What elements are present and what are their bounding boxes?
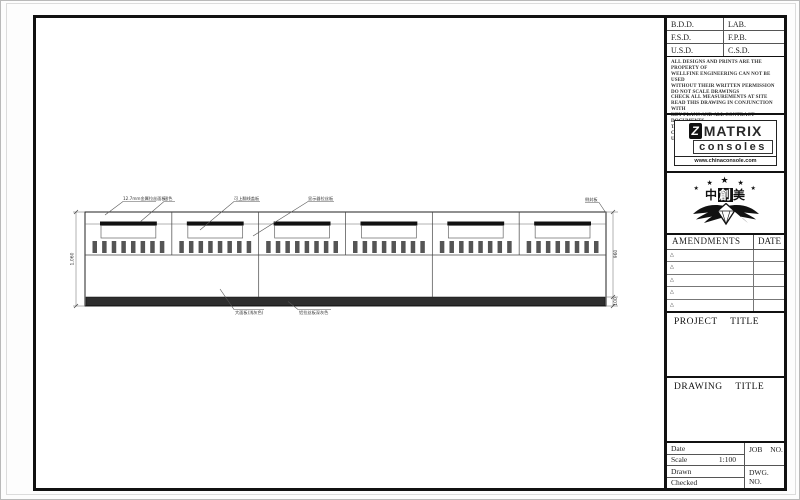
disclaimer-line: WITHOUT THEIR WRITTEN PERMISSION xyxy=(671,84,782,90)
emblem-char: 美 xyxy=(733,188,746,202)
emblem-char: 中 xyxy=(705,188,718,202)
info-left-column: Date Scale 1:100 Drawn Checked xyxy=(667,443,745,488)
dwg-no-cell: DWG. NO. xyxy=(745,466,784,488)
approval-cell: B.D.D. xyxy=(667,18,724,31)
vent-slot xyxy=(208,241,213,253)
vent-slot xyxy=(247,241,252,253)
vent-slot xyxy=(160,241,165,253)
vent-slot xyxy=(150,241,155,253)
vent-slot xyxy=(459,241,464,253)
revision-mark: △ xyxy=(667,262,754,273)
star-icon: ★ xyxy=(721,176,729,185)
vent-slot xyxy=(305,241,310,253)
date-column-header: DATE xyxy=(754,235,784,249)
monitor-strip-bar xyxy=(274,222,331,226)
monitor-recess-panel xyxy=(535,226,590,239)
vent-slot xyxy=(237,241,242,253)
revision-mark: △ xyxy=(667,250,754,261)
monitor-strip-bar xyxy=(447,222,504,226)
scale-label: Scale xyxy=(671,455,687,464)
company-emblem-section: ★ ★ ★ ★ ★ 中創美 xyxy=(667,171,784,233)
dimension-left-total: 1,060 xyxy=(70,210,86,308)
date-row: Date xyxy=(667,443,744,455)
callout-top4: 侧封板 xyxy=(585,196,598,203)
vent-slot xyxy=(266,241,271,253)
vent-slot xyxy=(141,241,146,253)
vent-slot xyxy=(382,241,387,253)
vent-slot xyxy=(575,241,580,253)
emblem-characters: 中創美 xyxy=(692,188,760,202)
vent-slot xyxy=(391,241,396,253)
approval-table: B.D.D. LAB. F.S.D. F.P.B. U.S.D. C.S.D. xyxy=(667,18,784,56)
vent-slot xyxy=(411,241,416,253)
monitor-recess-panel xyxy=(101,226,156,239)
monitor-strip-bar xyxy=(100,222,157,226)
project-title-label: PROJECT TITLE xyxy=(667,313,784,327)
vent-slot xyxy=(527,241,532,253)
vent-slot xyxy=(199,241,204,253)
vent-slot xyxy=(295,241,300,253)
amendments-table: AMENDMENTS DATE △ △ △ △ △ xyxy=(667,233,784,311)
monitor-recess-panel xyxy=(362,226,417,239)
monitor-recess-panel xyxy=(188,226,243,239)
vent-slot xyxy=(314,241,319,253)
approval-cell: F.S.D. xyxy=(667,31,724,44)
drawn-row: Drawn xyxy=(667,466,744,478)
amendments-title: AMENDMENTS xyxy=(667,235,754,249)
callout-top1b: 银色 xyxy=(164,195,173,202)
bay-layer xyxy=(93,212,599,255)
vent-slot xyxy=(285,241,290,253)
vent-slot xyxy=(102,241,107,253)
vent-slot xyxy=(179,241,184,253)
vent-slot xyxy=(594,241,599,253)
job-no-cell: JOB NO. xyxy=(745,443,784,466)
vent-slot xyxy=(189,241,194,253)
dim-upper-height: 960 xyxy=(613,250,619,259)
revision-mark: △ xyxy=(667,275,754,286)
amendment-row: △ xyxy=(667,250,784,262)
vent-slot xyxy=(372,241,377,253)
callout-bottom1: 大面板(浅灰色) xyxy=(235,309,264,316)
drawing-title-box: DRAWING TITLE xyxy=(667,376,784,441)
monitor-recess-panel xyxy=(448,226,503,239)
vent-slot xyxy=(420,241,425,253)
revision-mark: △ xyxy=(667,287,754,298)
star-icon: ★ xyxy=(707,180,713,187)
callout-top1: 12.7mm金属拉丝面板 xyxy=(123,195,166,202)
drawing-title-label: DRAWING TITLE xyxy=(667,378,784,392)
vent-slot xyxy=(546,241,551,253)
company-logo-section: Z MATRIX consoles www.chinaconsole.com xyxy=(667,113,784,171)
emblem-char: 創 xyxy=(718,188,733,202)
vent-slot xyxy=(218,241,223,253)
vent-slot xyxy=(324,241,329,253)
monitor-recess-panel xyxy=(275,226,330,239)
matrix-consoles-logo: Z MATRIX consoles www.chinaconsole.com xyxy=(674,120,777,166)
info-right-column: JOB NO. DWG. NO. xyxy=(745,443,784,488)
vent-slot xyxy=(363,241,368,253)
plinth-base xyxy=(86,297,605,306)
vent-slot xyxy=(507,241,512,253)
logo-website: www.chinaconsole.com xyxy=(675,156,776,165)
checked-row: Checked xyxy=(667,478,744,489)
wings-icon xyxy=(693,203,759,227)
date-label: Date xyxy=(671,444,685,453)
logo-sub-text: consoles xyxy=(693,140,773,154)
vent-slot xyxy=(401,241,406,253)
logo-brand-text: MATRIX xyxy=(704,123,763,139)
amendment-row: △ xyxy=(667,262,784,274)
callout-bottom2: 铝拉丝板深灰色 xyxy=(299,309,329,316)
scale-value: 1:100 xyxy=(719,455,736,464)
vent-slot xyxy=(227,241,232,253)
amendment-row: △ xyxy=(667,287,784,299)
vent-slot xyxy=(121,241,126,253)
wings-badge: ★ ★ ★ ★ ★ 中創美 xyxy=(692,176,760,230)
vent-slot xyxy=(112,241,117,253)
vent-slot xyxy=(498,241,503,253)
callout-top2: 可上翻线盖板 xyxy=(234,195,260,202)
info-table: Date Scale 1:100 Drawn Checked JOB NO. D… xyxy=(667,441,784,488)
dim-plinth-height: 100 xyxy=(613,297,619,306)
drawing-sheet: 1,060 960 100 12.7mm金属拉丝面板 银色 可上翻线盖板 显示器… xyxy=(0,0,800,500)
callout-top3: 显示器拉丝板 xyxy=(308,195,334,202)
vent-slot xyxy=(565,241,570,253)
disclaimer-line: ALL DESIGNS AND PRINTS ARE THE PROPERTY … xyxy=(671,60,782,72)
approval-cell: LAB. xyxy=(724,18,784,31)
vent-slot xyxy=(469,241,474,253)
monitor-strip-bar xyxy=(187,222,244,226)
checked-label: Checked xyxy=(671,478,697,487)
vent-slot xyxy=(584,241,589,253)
vent-slot xyxy=(478,241,483,253)
title-block: B.D.D. LAB. F.S.D. F.P.B. U.S.D. C.S.D. … xyxy=(664,18,784,488)
amendments-header: AMENDMENTS DATE xyxy=(667,235,784,250)
dimension-right: 960 100 xyxy=(606,210,619,308)
dim-total-height: 1,060 xyxy=(70,252,76,265)
vent-slot xyxy=(488,241,493,253)
project-title-box: PROJECT TITLE xyxy=(667,311,784,376)
vent-slot xyxy=(334,241,339,253)
vent-slot xyxy=(276,241,281,253)
vent-slot xyxy=(93,241,98,253)
monitor-strip-bar xyxy=(361,222,418,226)
approval-cell: F.P.B. xyxy=(724,31,784,44)
disclaimer-text: ALL DESIGNS AND PRINTS ARE THE PROPERTY … xyxy=(667,56,784,113)
callouts-top: 12.7mm金属拉丝面板 银色 可上翻线盖板 显示器拉丝板 侧封板 xyxy=(105,195,606,236)
vent-slot xyxy=(556,241,561,253)
disclaimer-line: READ THIS DRAWING IN CONJUNCTION WITH xyxy=(671,101,782,113)
star-icon: ★ xyxy=(738,180,744,187)
vent-slot xyxy=(449,241,454,253)
disclaimer-line: WELLFINE ENGINEERING CAN NOT BE USED xyxy=(671,72,782,84)
vent-slot xyxy=(353,241,358,253)
amendment-row: △ xyxy=(667,275,784,287)
logo-z-icon: Z xyxy=(689,123,702,139)
monitor-strip-bar xyxy=(534,222,591,226)
vent-slot xyxy=(440,241,445,253)
scale-row: Scale 1:100 xyxy=(667,455,744,467)
vent-slot xyxy=(131,241,136,253)
vent-slot xyxy=(536,241,541,253)
drawn-label: Drawn xyxy=(671,467,691,476)
